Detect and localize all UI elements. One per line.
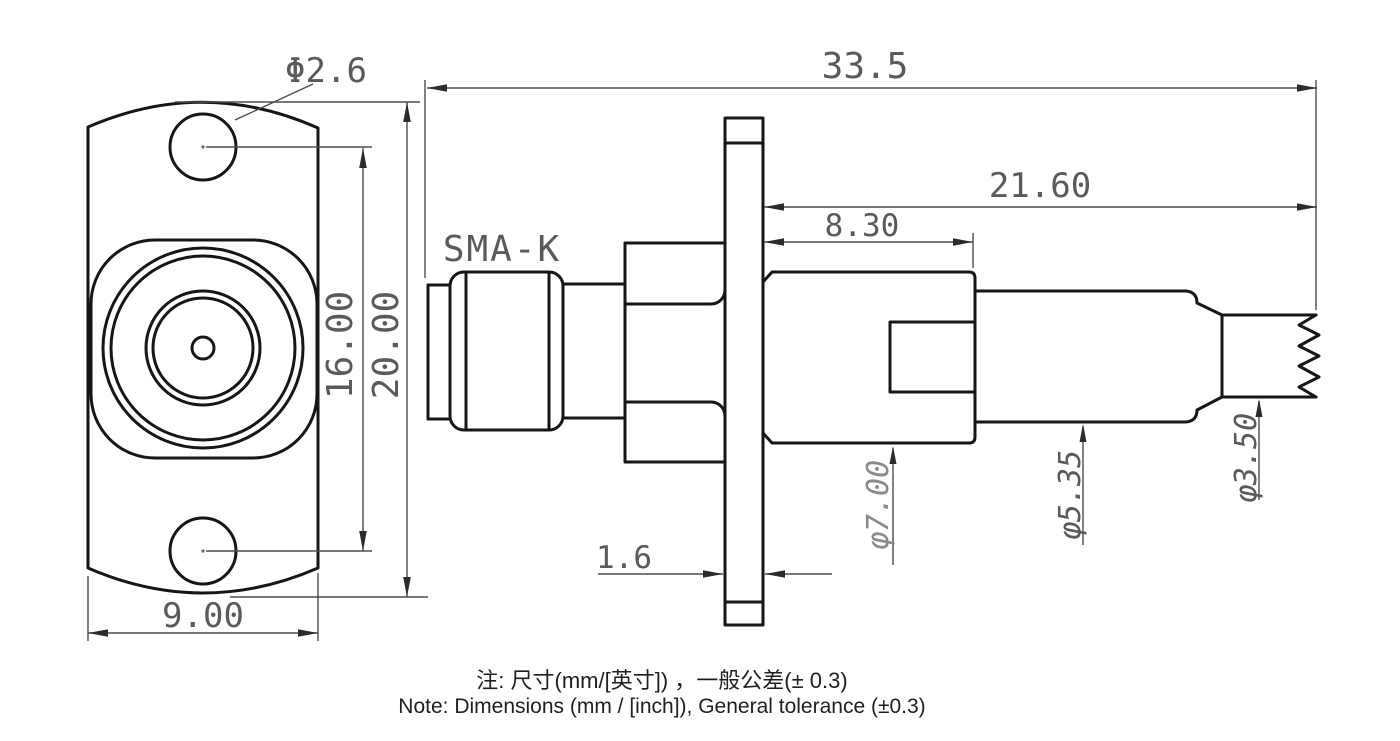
- arrowhead: [764, 238, 784, 246]
- part-type-label: SMA-K: [443, 229, 561, 270]
- dim-flange-thickness: 1.6: [596, 540, 832, 578]
- dim-label-hole-spacing: 16.00: [320, 291, 361, 399]
- arrowhead: [298, 629, 318, 637]
- dim-body-diameter: φ7.00: [861, 446, 897, 565]
- dim-label-cylinder-diameter: φ5.35: [1053, 450, 1088, 540]
- arrowhead: [953, 238, 973, 246]
- arrowhead: [703, 570, 723, 578]
- dim-overall-length: 33.5: [425, 46, 1317, 310]
- hole-center-mark-top: [201, 145, 204, 148]
- rear-body-slot: [890, 322, 975, 392]
- arrowhead: [359, 148, 367, 168]
- cylinder-bottom-contour: [975, 397, 1316, 422]
- arrowhead: [359, 531, 367, 551]
- front-tube: [428, 285, 452, 419]
- hole-center-mark-bottom: [201, 549, 204, 552]
- shoulder-block: [625, 243, 725, 462]
- dim-label-hole-diameter: Φ2.6: [285, 51, 367, 91]
- dim-label-body-diameter: φ7.00: [861, 460, 896, 550]
- arrowhead: [427, 84, 447, 92]
- center-pin: [192, 337, 214, 359]
- arrowhead: [88, 629, 108, 637]
- dim-label-rear-length: 21.60: [989, 166, 1091, 206]
- dim-cable-diameter: φ3.50: [1229, 399, 1264, 503]
- note-line-chinese: 注: 尺寸(mm/[英寸]) ，一般公差(± 0.3): [476, 668, 847, 693]
- cable-break-line: [1299, 315, 1319, 397]
- note-line-english: Note: Dimensions (mm / [inch]), General …: [398, 695, 925, 718]
- dim-label-overall-length: 33.5: [822, 46, 909, 87]
- dim-label-body-length: 8.30: [825, 208, 900, 244]
- arrowhead: [403, 577, 411, 597]
- arrowhead: [1297, 203, 1317, 211]
- cylinder-top-contour: [975, 291, 1316, 315]
- dim-label-cable-diameter: φ3.50: [1229, 413, 1264, 503]
- arrowhead: [403, 102, 411, 122]
- dim-cylinder-diameter: φ5.35: [1053, 424, 1088, 545]
- arrowhead: [765, 570, 785, 578]
- front-view: [88, 102, 318, 593]
- technical-drawing-page: Φ2.6 33.5 21.60 8.30: [0, 0, 1400, 741]
- dim-body-length: 8.30: [764, 208, 973, 268]
- arrowhead: [1297, 84, 1317, 92]
- dim-rear-length: 21.60: [764, 166, 1317, 211]
- arrowhead: [764, 203, 784, 211]
- arrowhead: [1080, 424, 1087, 442]
- dim-label-flange-width: 9.00: [162, 596, 244, 636]
- technical-drawing-canvas: Φ2.6 33.5 21.60 8.30: [0, 0, 1400, 741]
- flange-plate: [725, 118, 763, 625]
- notes: 注: 尺寸(mm/[英寸]) ，一般公差(± 0.3) Note: Dimens…: [398, 668, 925, 718]
- dim-label-flange-thickness: 1.6: [596, 540, 652, 576]
- dim-label-flange-height: 20.00: [366, 291, 407, 399]
